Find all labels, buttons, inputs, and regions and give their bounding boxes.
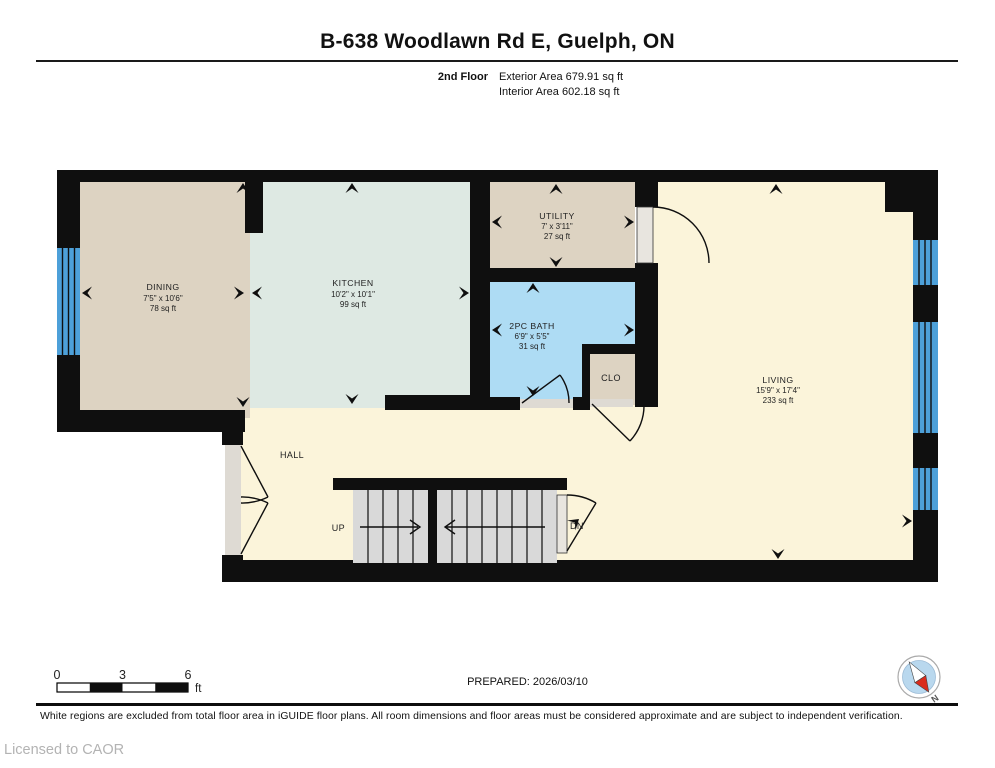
room-dining-dims: 7'5" x 10'6" [143,294,183,303]
room-living-area: 233 sq ft [763,396,794,405]
room-kitchen-label: KITCHEN [332,278,373,288]
bath-door-threshold [520,399,573,408]
room-dining-area: 78 sq ft [150,304,177,313]
stairs-down-door-leaf [557,495,567,553]
room-bath-area: 31 sq ft [519,342,546,351]
room-living-fill [640,178,915,563]
closet-door-threshold [590,399,633,407]
room-bath-dims: 6'9" x 5'5" [515,332,550,341]
room-utility-dims: 7' x 3'11" [541,222,573,231]
floor-plan-canvas: DINING 7'5" x 10'6" 78 sq ft KITCHEN 10'… [0,0,995,768]
room-bath-label: 2PC BATH [509,321,554,331]
room-utility-label: UTILITY [539,211,575,221]
stairs-down-label: DN [570,521,584,531]
disclaimer-text: White regions are excluded from total fl… [40,711,960,722]
room-kitchen-area: 99 sq ft [340,300,367,309]
room-living-dims: 15'9" x 17'4" [756,386,800,395]
stairs-up-label: UP [332,523,345,533]
room-closet-label: CLO [601,373,621,383]
room-dining-label: DINING [146,282,179,292]
hall-door-threshold [225,443,241,555]
footer-divider [36,703,958,706]
room-hall-label: HALL [280,450,304,460]
stairs [353,490,557,563]
license-text: Licensed to CAOR [4,742,124,758]
room-living-label: LIVING [762,375,793,385]
room-kitchen-dims: 10'2" x 10'1" [331,290,375,299]
utility-door-leaf [637,207,653,263]
room-utility-area: 27 sq ft [544,232,571,241]
prepared-date: PREPARED: 2026/03/10 [0,676,995,688]
